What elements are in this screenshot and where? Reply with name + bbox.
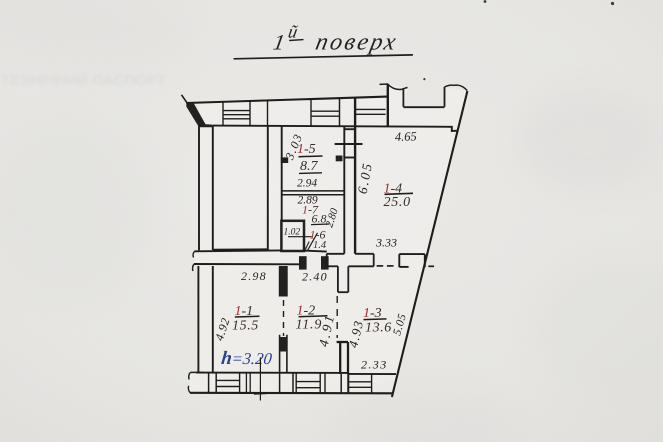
svg-text:2.94: 2.94 [297,178,317,190]
svg-text:8.7: 8.7 [300,159,319,174]
svg-text:поверх: поверх [313,29,400,56]
svg-text:3.33: 3.33 [375,236,397,250]
svg-text:2.98: 2.98 [241,269,267,283]
svg-text:1.4: 1.4 [313,240,327,251]
svg-text:ТЕХНІЧНИЙ ПАСПОРТ: ТЕХНІЧНИЙ ПАСПОРТ [1,71,166,89]
svg-text:13.6: 13.6 [365,321,392,336]
svg-text:1.02: 1.02 [284,228,301,238]
svg-text:2.40: 2.40 [302,270,328,284]
svg-text:h=3.20: h=3.20 [220,348,273,369]
svg-text:2.33: 2.33 [361,358,388,372]
svg-text:15.5: 15.5 [232,319,259,334]
svg-text:4.65: 4.65 [395,129,417,144]
svg-text:25.0: 25.0 [384,195,411,210]
